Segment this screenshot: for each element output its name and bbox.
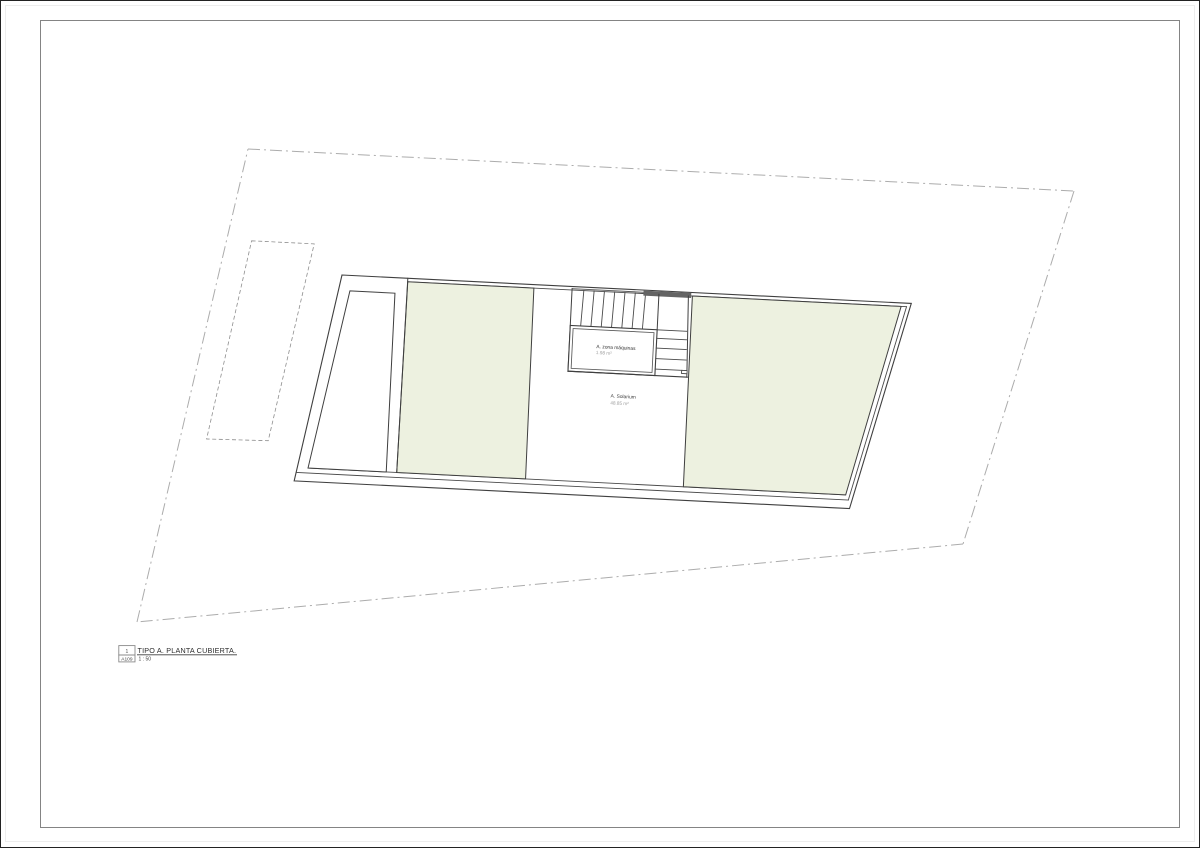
svg-text:TIPO A. PLANTA CUBIERTA.: TIPO A. PLANTA CUBIERTA. xyxy=(138,646,237,655)
svg-text:A109: A109 xyxy=(121,657,133,663)
svg-text:1: 1 xyxy=(126,649,129,655)
svg-text:1 : 50: 1 : 50 xyxy=(139,657,152,663)
svg-text:48.85 m²: 48.85 m² xyxy=(610,400,629,406)
svg-text:1.98 m²: 1.98 m² xyxy=(596,350,613,356)
